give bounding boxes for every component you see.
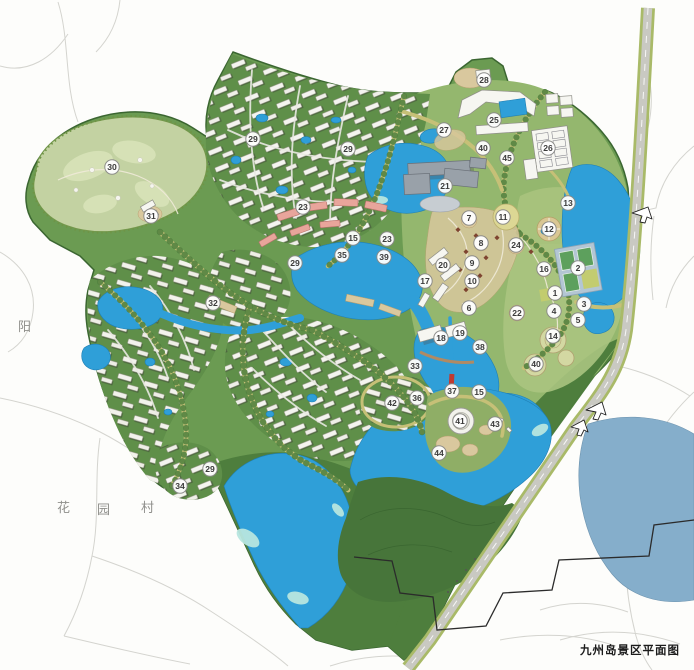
- map-marker-24: 24: [509, 238, 523, 252]
- map-marker-17: 17: [418, 274, 432, 288]
- map-marker-9: 9: [465, 256, 479, 270]
- svg-text:31: 31: [146, 211, 156, 221]
- svg-text:21: 21: [440, 181, 450, 191]
- svg-text:6: 6: [467, 303, 472, 313]
- hotel-pool: [499, 98, 527, 117]
- map-marker-30: 30: [105, 160, 119, 174]
- map-marker-33: 33: [408, 359, 422, 373]
- map-marker-23: 23: [380, 232, 394, 246]
- svg-text:19: 19: [455, 328, 465, 338]
- svg-text:44: 44: [434, 448, 444, 458]
- svg-text:36: 36: [412, 393, 422, 403]
- map-marker-12: 12: [542, 222, 556, 236]
- map-marker-44: 44: [432, 446, 446, 460]
- map-marker-3: 3: [577, 297, 591, 311]
- external-lake: [579, 417, 694, 602]
- map-marker-4: 4: [547, 304, 561, 318]
- site-plan-map: 花园村阳 12345678910111213141515161718192021…: [0, 0, 694, 670]
- map-marker-28: 28: [477, 73, 491, 87]
- svg-text:18: 18: [436, 333, 446, 343]
- map-marker-36: 36: [410, 391, 424, 405]
- svg-text:5: 5: [576, 315, 581, 325]
- map-marker-5: 5: [571, 313, 585, 327]
- map-marker-34: 34: [173, 479, 187, 493]
- svg-text:27: 27: [439, 125, 449, 135]
- map-marker-22: 22: [510, 306, 524, 320]
- svg-text:42: 42: [387, 398, 397, 408]
- map-marker-18: 18: [434, 331, 448, 345]
- map-marker-37: 37: [445, 384, 459, 398]
- svg-text:22: 22: [512, 308, 522, 318]
- svg-text:24: 24: [511, 240, 521, 250]
- map-marker-26: 26: [541, 141, 555, 155]
- map-marker-45: 45: [500, 151, 514, 165]
- area-label: 阳: [18, 319, 31, 334]
- svg-text:38: 38: [475, 342, 485, 352]
- svg-text:45: 45: [502, 153, 512, 163]
- map-marker-13: 13: [561, 196, 575, 210]
- svg-text:40: 40: [478, 143, 488, 153]
- svg-text:8: 8: [479, 238, 484, 248]
- svg-text:1: 1: [553, 288, 558, 298]
- site-plan-page: 花园村阳 12345678910111213141515161718192021…: [0, 0, 694, 670]
- svg-text:33: 33: [410, 361, 420, 371]
- svg-text:12: 12: [544, 224, 554, 234]
- svg-text:29: 29: [205, 464, 215, 474]
- map-marker-29: 29: [203, 462, 217, 476]
- svg-text:25: 25: [489, 115, 499, 125]
- map-marker-16: 16: [537, 262, 551, 276]
- map-marker-14: 14: [546, 329, 560, 343]
- svg-text:32: 32: [208, 298, 218, 308]
- map-marker-8: 8: [474, 236, 488, 250]
- svg-text:29: 29: [290, 258, 300, 268]
- area-label: 村: [141, 500, 154, 515]
- map-marker-23: 23: [296, 200, 310, 214]
- map-marker-19: 19: [453, 326, 467, 340]
- svg-text:15: 15: [474, 387, 484, 397]
- svg-text:14: 14: [548, 331, 558, 341]
- svg-text:37: 37: [447, 386, 457, 396]
- svg-text:43: 43: [490, 419, 500, 429]
- svg-text:17: 17: [420, 276, 430, 286]
- area-label: 园: [97, 502, 110, 517]
- map-marker-35: 35: [335, 248, 349, 262]
- svg-text:35: 35: [337, 250, 347, 260]
- svg-text:28: 28: [479, 75, 489, 85]
- svg-text:7: 7: [467, 213, 472, 223]
- svg-text:30: 30: [107, 162, 117, 172]
- map-marker-25: 25: [487, 113, 501, 127]
- map-marker-29: 29: [246, 132, 260, 146]
- map-marker-15: 15: [472, 385, 486, 399]
- svg-text:2: 2: [576, 263, 581, 273]
- area-label: 花: [57, 500, 70, 515]
- svg-text:41: 41: [455, 416, 465, 426]
- map-marker-41: 41: [453, 414, 467, 428]
- map-marker-38: 38: [473, 340, 487, 354]
- svg-text:13: 13: [563, 198, 573, 208]
- map-marker-1: 1: [548, 286, 562, 300]
- map-marker-11: 11: [496, 210, 510, 224]
- svg-text:15: 15: [348, 233, 358, 243]
- map-marker-15: 15: [346, 231, 360, 245]
- map-marker-40: 40: [529, 357, 543, 371]
- svg-text:3: 3: [582, 299, 587, 309]
- svg-text:16: 16: [539, 264, 549, 274]
- map-marker-42: 42: [385, 396, 399, 410]
- svg-text:9: 9: [470, 258, 475, 268]
- map-marker-29: 29: [288, 256, 302, 270]
- svg-text:11: 11: [498, 212, 507, 222]
- map-marker-29: 29: [341, 142, 355, 156]
- map-marker-21: 21: [438, 179, 452, 193]
- map-marker-31: 31: [144, 209, 158, 223]
- svg-text:29: 29: [343, 144, 353, 154]
- map-marker-2: 2: [571, 261, 585, 275]
- svg-text:39: 39: [379, 252, 389, 262]
- svg-text:34: 34: [175, 481, 185, 491]
- svg-text:23: 23: [298, 202, 308, 212]
- map-marker-43: 43: [488, 417, 502, 431]
- map-marker-7: 7: [462, 211, 476, 225]
- svg-text:23: 23: [382, 234, 392, 244]
- map-marker-39: 39: [377, 250, 391, 264]
- map-marker-27: 27: [437, 123, 451, 137]
- map-caption: 九州岛景区平面图: [580, 642, 680, 658]
- map-marker-10: 10: [465, 274, 479, 288]
- svg-text:10: 10: [467, 276, 477, 286]
- map-marker-20: 20: [436, 258, 450, 272]
- map-marker-32: 32: [206, 296, 220, 310]
- svg-text:20: 20: [438, 260, 448, 270]
- svg-text:40: 40: [531, 359, 541, 369]
- map-marker-40: 40: [476, 141, 490, 155]
- svg-text:26: 26: [543, 143, 553, 153]
- map-marker-6: 6: [462, 301, 476, 315]
- svg-text:29: 29: [248, 134, 258, 144]
- svg-text:4: 4: [552, 306, 557, 316]
